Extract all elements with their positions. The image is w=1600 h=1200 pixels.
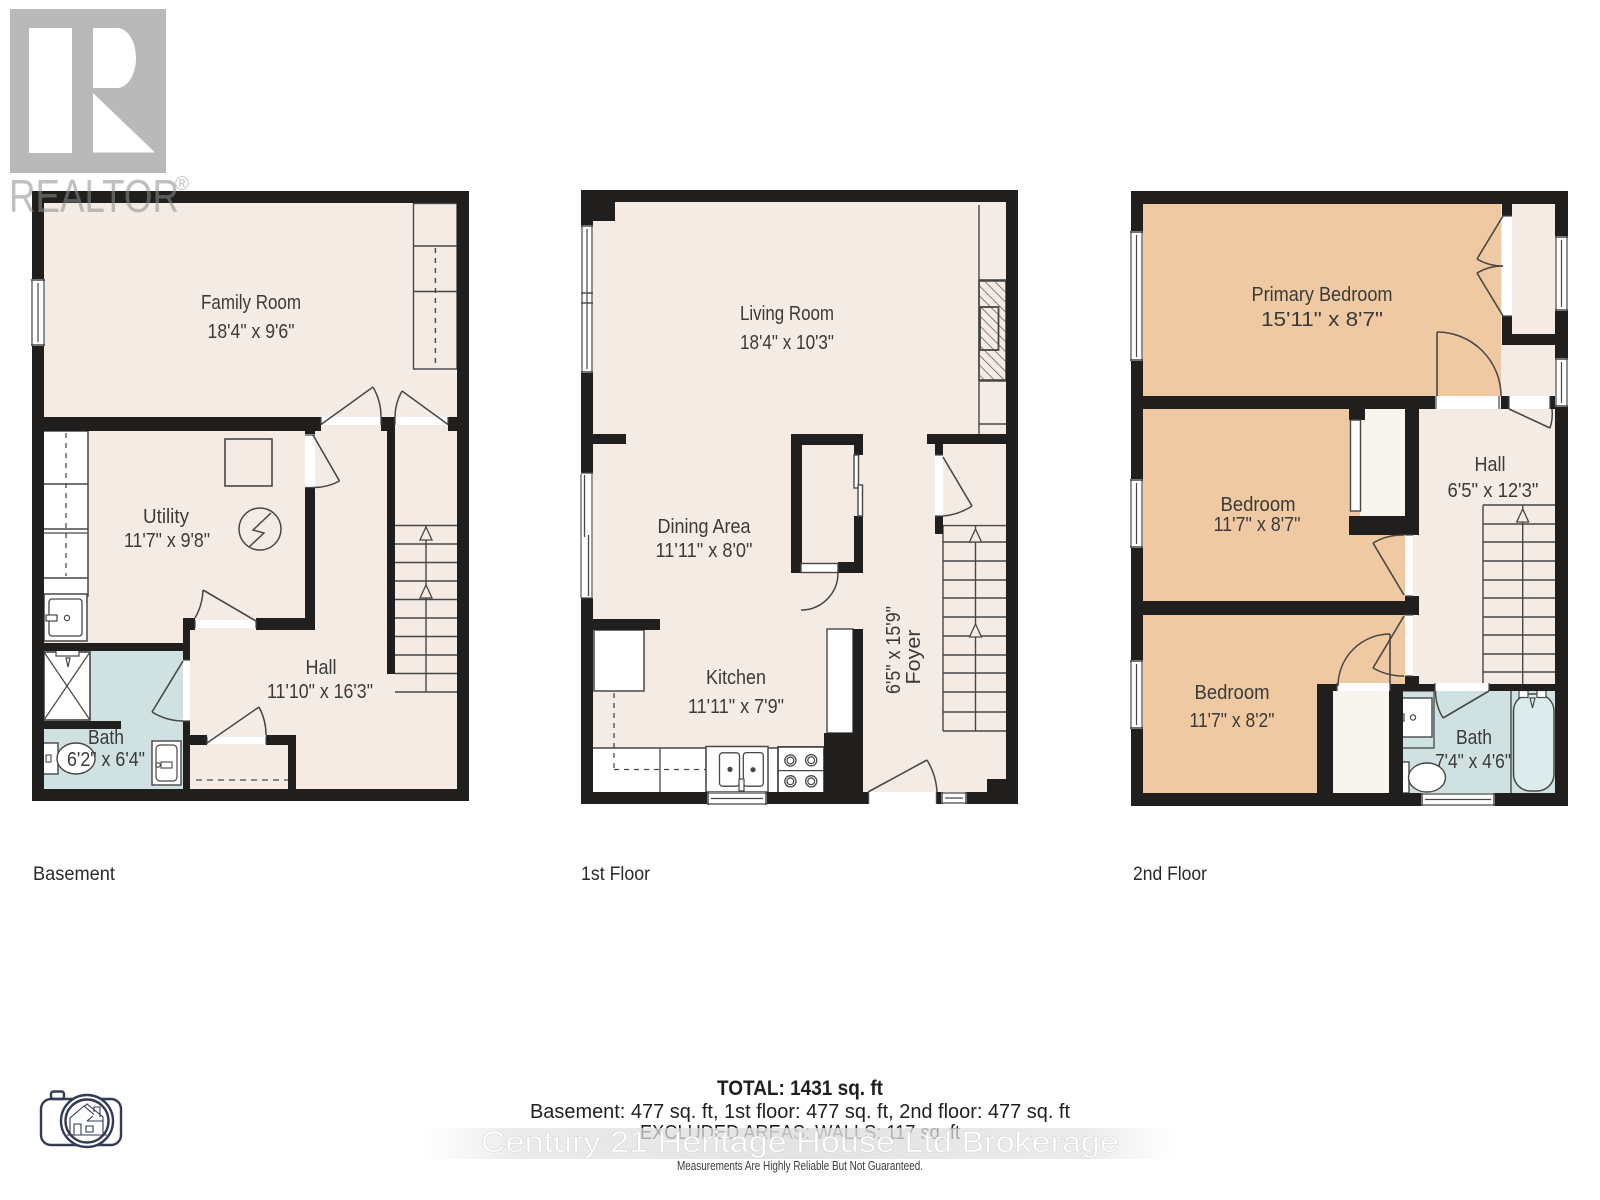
svg-text:Century 21 Heritage House Ltd: Century 21 Heritage House Ltd Brokerage <box>481 1126 1119 1159</box>
svg-text:6'5" x 12'3": 6'5" x 12'3" <box>1448 480 1539 502</box>
svg-text:Basement: 477 sq. ft, 1st floo: Basement: 477 sq. ft, 1st floor: 477 sq.… <box>530 1101 1070 1123</box>
svg-text:Primary Bedroom: Primary Bedroom <box>1252 284 1393 306</box>
svg-text:11'11" x 8'0": 11'11" x 8'0" <box>656 540 753 562</box>
svg-text:1st Floor: 1st Floor <box>581 863 650 885</box>
svg-text:6'2" x 6'4": 6'2" x 6'4" <box>67 749 145 771</box>
svg-text:6'5" x 15'9": 6'5" x 15'9" <box>883 606 905 694</box>
svg-text:11'7" x 8'2": 11'7" x 8'2" <box>1190 710 1275 732</box>
svg-text:11'7" x 9'8": 11'7" x 9'8" <box>124 530 210 552</box>
svg-text:Living Room: Living Room <box>740 303 834 325</box>
svg-text:7'4" x 4'6": 7'4" x 4'6" <box>1435 751 1511 773</box>
svg-text:Bedroom: Bedroom <box>1221 494 1296 516</box>
svg-text:Family Room: Family Room <box>201 292 301 314</box>
svg-text:Basement: Basement <box>33 863 116 885</box>
svg-text:Dining Area: Dining Area <box>658 516 752 538</box>
svg-text:15'11" x 8'7": 15'11" x 8'7" <box>1261 309 1383 331</box>
svg-text:REALTOR: REALTOR <box>9 170 179 222</box>
svg-text:Bath: Bath <box>88 727 124 749</box>
svg-text:TOTAL: 1431 sq. ft: TOTAL: 1431 sq. ft <box>717 1076 883 1100</box>
svg-text:Foyer: Foyer <box>903 629 925 684</box>
svg-text:Hall: Hall <box>1475 454 1506 476</box>
svg-text:Bedroom: Bedroom <box>1195 682 1270 704</box>
svg-text:18'4" x 9'6": 18'4" x 9'6" <box>208 321 295 343</box>
svg-text:®: ® <box>175 174 189 195</box>
svg-text:Measurements Are Highly Reliab: Measurements Are Highly Reliable But Not… <box>677 1159 923 1173</box>
svg-text:Bath: Bath <box>1456 727 1492 749</box>
svg-text:Utility: Utility <box>143 506 189 528</box>
svg-text:18'4" x 10'3": 18'4" x 10'3" <box>740 332 834 354</box>
svg-text:Hall: Hall <box>306 657 337 679</box>
svg-text:11'11" x 7'9": 11'11" x 7'9" <box>688 696 784 718</box>
svg-text:11'10" x 16'3": 11'10" x 16'3" <box>267 681 373 703</box>
svg-text:2nd Floor: 2nd Floor <box>1133 863 1207 885</box>
svg-text:Kitchen: Kitchen <box>706 667 766 689</box>
svg-text:11'7" x 8'7": 11'7" x 8'7" <box>1214 514 1301 536</box>
